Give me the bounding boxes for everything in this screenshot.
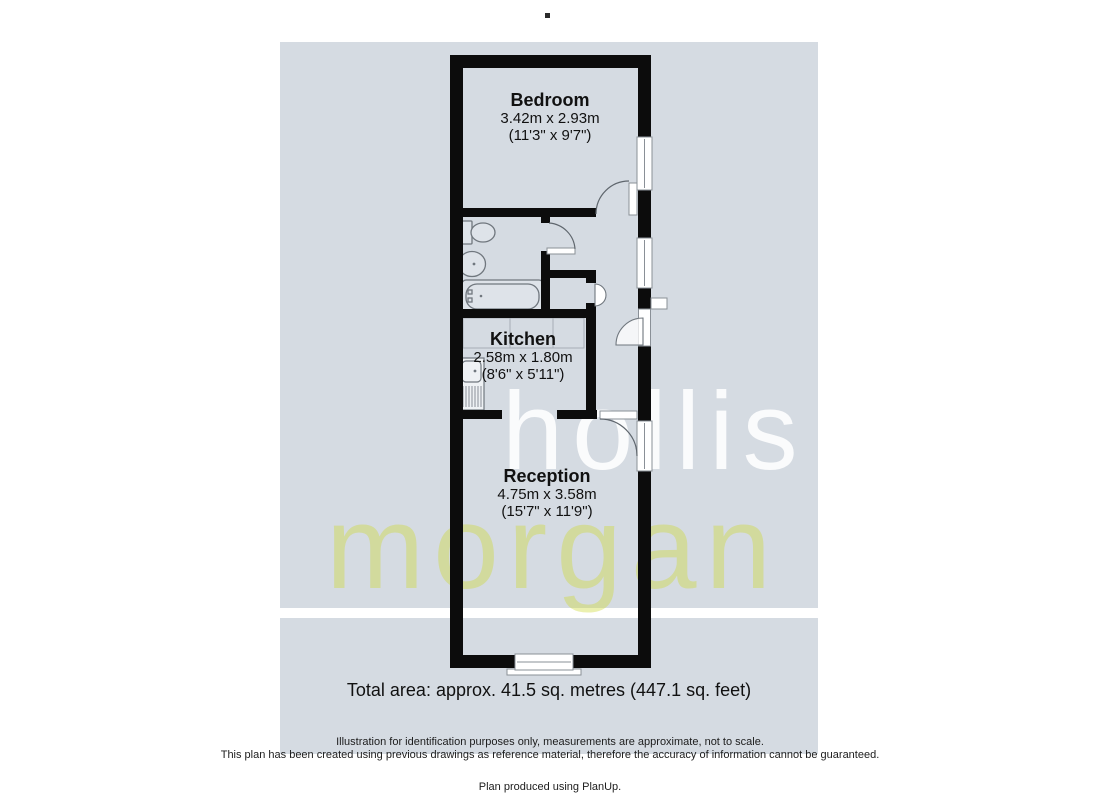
reception-window [637,421,652,471]
wall-bedroom-divider [463,208,596,217]
wall-kitchen-right [586,303,596,419]
floorplan-page: hollis morgan [0,0,1100,800]
wall-left [450,55,463,668]
wall-kitchen-bottom-right [557,410,597,419]
disclaimer-line2: This plan has been created using previou… [0,749,1100,761]
entrance-threshold [651,298,667,309]
toilet-icon [459,221,495,244]
bedroom-door [596,181,637,215]
wall-top [463,55,651,68]
planup-credit: Plan produced using PlanUp. [0,781,1100,793]
reception-bottom-window [507,654,581,675]
hallway-window [637,238,652,288]
disclaimer-line1: Illustration for identification purposes… [0,736,1100,748]
wall-hall-lower [541,251,550,311]
bathtub-icon [462,280,543,313]
wall-kitchen-bottom-left [450,410,502,419]
bathroom-door [547,223,575,254]
hall-reception-door [600,411,637,456]
total-area-text: Total area: approx. 41.5 sq. metres (447… [280,680,818,701]
bedroom-window [637,137,652,190]
wall-hall-upper-stub [541,217,550,223]
entrance-door [616,309,651,346]
kitchen-counter [463,318,584,348]
wall-bathroom-bottom [450,309,596,318]
closet-door [595,284,606,306]
wall-closet-right-upper [586,270,596,283]
